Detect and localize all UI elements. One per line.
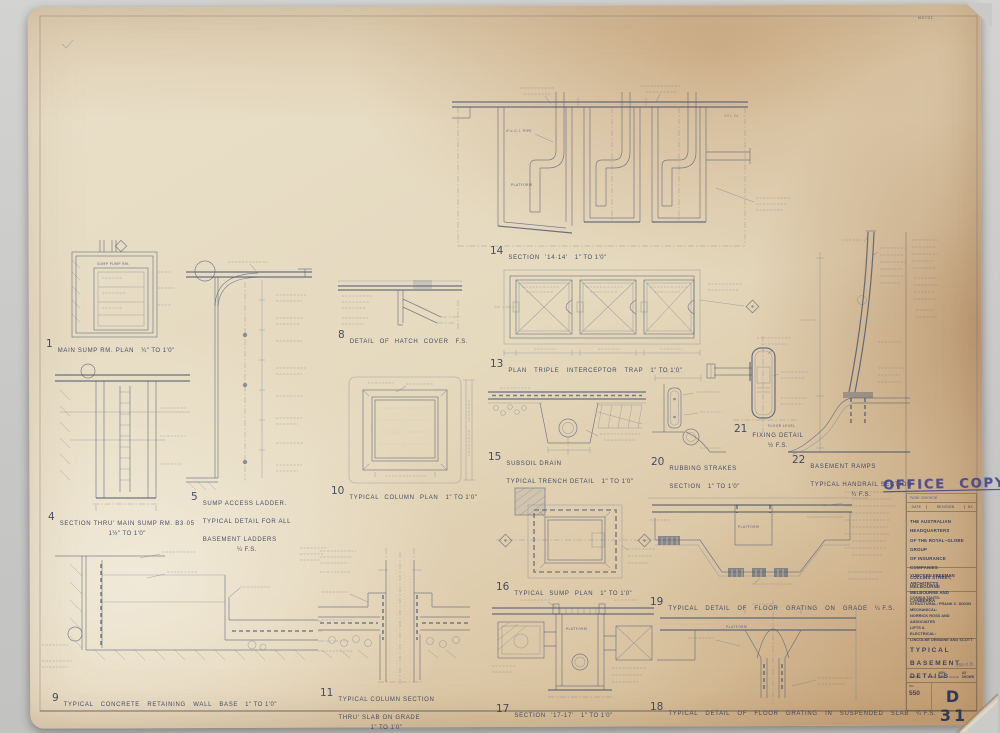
detail-label: TYPICAL SUMP PLAN	[514, 591, 593, 597]
revision-entry-row: Note General	[906, 493, 977, 503]
detail-16-drawing	[496, 488, 656, 578]
svg-text:4"⌀ C.I. PIPE: 4"⌀ C.I. PIPE	[506, 129, 532, 133]
detail-8-drawing	[338, 280, 462, 330]
detail-scale: ¼" TO 1'0"	[141, 348, 175, 354]
detail-19-drawing: PLATFORM	[648, 492, 895, 584]
detail-18-drawing: PLATFORM	[657, 600, 856, 704]
detail-15-drawing	[488, 388, 646, 455]
detail-17-drawing: PLATFORM	[492, 600, 654, 697]
detail-scale: 1½" TO 1'0"	[60, 531, 195, 537]
detail-label: SECTION '17-17'	[514, 713, 573, 719]
revision-by-header: BY	[965, 505, 976, 509]
svg-text:PLATFORM: PLATFORM	[726, 625, 747, 629]
detail-scale: 1" TO 1'0"	[445, 495, 477, 501]
detail-caption-13: 13 PLAN TRIPLE INTERCEPTOR TRAP1" TO 1'0…	[490, 359, 730, 377]
svg-text:PLATFORM: PLATFORM	[738, 525, 759, 529]
detail-number: 18	[650, 702, 663, 713]
detail-scale: 1" TO 1'0"	[245, 702, 277, 708]
architects-block: YUNCKEN FREEMAN ARCHITECTS MELBOURNE AND…	[906, 568, 977, 592]
svg-text:PLATFORM: PLATFORM	[511, 183, 532, 187]
project-line: THE AUSTRALIAN HEADQUARTERS	[910, 517, 973, 536]
detail-label: MAIN SUMP RM. PLAN	[58, 348, 135, 354]
detail-caption-19: 19 TYPICAL DETAIL OF FLOOR GRATING ON GR…	[650, 597, 920, 615]
detail-number: 1	[46, 339, 53, 350]
detail-number: 17	[496, 704, 509, 715]
svg-text:SUMP PUMP RM.: SUMP PUMP RM.	[97, 262, 130, 266]
detail-number: 8	[338, 330, 345, 341]
detail-5-drawing	[186, 261, 312, 490]
margin-notes	[912, 240, 938, 317]
svg-text:PLATFORM: PLATFORM	[566, 627, 587, 631]
detail-label: DETAIL OF HATCH COVER	[350, 339, 449, 345]
architects-line: YUNCKEN FREEMAN ARCHITECTS	[910, 572, 973, 589]
detail-label: FIXING DETAIL	[752, 433, 803, 439]
detail-number: 9	[52, 693, 59, 704]
detail-number: 19	[650, 597, 663, 608]
drawn-label: DRAWN	[909, 675, 920, 679]
job-number: 550	[909, 690, 929, 697]
detail-13-drawing	[494, 270, 759, 356]
scanned-drawing-photo: N0701 SUMP PUMP RM.	[0, 0, 1000, 733]
detail-9-drawing	[42, 548, 354, 667]
paper-tear	[928, 678, 998, 733]
detail-scale: 1" TO 1'0"	[650, 368, 682, 374]
check-mark	[62, 40, 73, 48]
detail-label: TYPICAL COLUMN SECTION THRU' SLAB ON GRA…	[338, 697, 434, 721]
detail-scale: ¼ F.S.	[875, 606, 895, 612]
revision-entry: Note General	[910, 495, 937, 500]
detail-22-drawing	[788, 231, 910, 454]
detail-scale: ¼ F.S.	[203, 547, 292, 553]
detail-number: 11	[320, 688, 333, 699]
detail-scale: 1" TO 1'0"	[575, 255, 607, 261]
drawn-signature	[923, 671, 924, 679]
detail-caption-20: 20 RUBBING STRAKES SECTION1" TO 1'0"	[651, 457, 751, 493]
detail-caption-15: 15 SUBSOIL DRAIN TYPICAL TRENCH DETAIL1"…	[488, 452, 648, 488]
detail-number: 15	[488, 452, 501, 463]
detail-caption-8: 8 DETAIL OF HATCH COVERF.S.	[338, 330, 488, 348]
svg-text:VOL 34: VOL 34	[724, 114, 739, 118]
detail-20-drawing	[652, 372, 726, 452]
detail-label: SUMP ACCESS LADDER. TYPICAL DETAIL FOR A…	[203, 501, 292, 543]
detail-label: PLAN TRIPLE INTERCEPTOR TRAP	[508, 368, 643, 374]
detail-number: 5	[191, 492, 198, 503]
detail-label: SECTION THRU' MAIN SUMP RM. B3·05	[60, 521, 195, 527]
detail-caption-10: 10 TYPICAL COLUMN PLAN1" TO 1'0"	[331, 486, 491, 504]
detail-number: 10	[331, 486, 344, 497]
detail-number: 13	[490, 359, 503, 370]
detail-1-drawing: SUMP PUMP RM.	[72, 240, 174, 337]
project-line: OF THE ROYAL–GLOBE GROUP	[910, 536, 973, 555]
detail-label: TYPICAL DETAIL OF FLOOR GRATING ON GRADE	[668, 606, 867, 612]
detail-caption-9: 9 TYPICAL CONCRETE RETAINING WALL BASE1"…	[52, 693, 342, 711]
detail-scale: 1" TO 1'0"	[338, 725, 434, 731]
revision-date-header: DATE	[907, 505, 926, 509]
detail-21-drawing: FLOOR LEVEL	[707, 336, 809, 432]
detail-caption-11: 11 TYPICAL COLUMN SECTION THRU' SLAB ON …	[320, 688, 455, 731]
detail-label: TYPICAL DETAIL OF FLOOR GRATING IN SUSPE…	[668, 711, 909, 717]
detail-scale: ½ F.S.	[752, 443, 803, 449]
detail-scale: 1" TO 1'0"	[600, 591, 632, 597]
detail-number: 14	[490, 246, 503, 257]
consultants-line: NORRICK ROSS AND ASSOCIATES	[910, 613, 973, 625]
detail-label: SECTION '14·14'	[508, 255, 567, 261]
detail-4-drawing	[55, 364, 190, 511]
detail-number: 22	[792, 455, 805, 466]
detail-scale: 1" TO 1'0"	[708, 484, 740, 490]
detail-label: SUBSOIL DRAIN TYPICAL TRENCH DETAIL	[506, 461, 594, 485]
detail-caption-16: 16 TYPICAL SUMP PLAN1" TO 1'0"	[496, 582, 666, 600]
detail-scale: 1" TO 1'0"	[581, 713, 613, 719]
consultants-block: CONSULTANTS: STRUCTURAL: FRANK C. DIXON …	[906, 592, 977, 639]
detail-number: 16	[496, 582, 509, 593]
detail-11-drawing	[318, 548, 470, 684]
detail-number: 21	[734, 424, 747, 435]
detail-number: 20	[651, 457, 664, 468]
detail-scale: F.S.	[456, 339, 468, 345]
no-label: NO.	[909, 684, 914, 688]
detail-label: TYPICAL COLUMN PLAN	[349, 495, 438, 501]
detail-caption-21: 21 FIXING DETAIL½ F.S.	[734, 424, 824, 449]
detail-10-drawing	[349, 377, 475, 483]
detail-number: 4	[48, 512, 55, 523]
detail-label: TYPICAL CONCRETE RETAINING WALL BASE	[64, 702, 238, 708]
office-copy-stamp: OFFICE COPY	[883, 476, 1000, 494]
detail-caption-1: 1 MAIN SUMP RM. PLAN¼" TO 1'0"	[46, 339, 206, 357]
revision-header: REVISION	[926, 505, 966, 509]
corner-mark: N0701	[918, 15, 934, 20]
detail-caption-17: 17 SECTION '17-17'1" TO 1'0"	[496, 704, 646, 722]
detail-caption-5: 5 SUMP ACCESS LADDER. TYPICAL DETAIL FOR…	[191, 492, 301, 553]
detail-14-drawing: 4"⌀ C.I. PIPE PLATFORM VOL 34	[452, 86, 790, 246]
detail-caption-14: 14 SECTION '14·14'1" TO 1'0"	[490, 246, 670, 264]
project-description: THE AUSTRALIAN HEADQUARTERS OF THE ROYAL…	[906, 512, 977, 568]
detail-scale: 1" TO 1'0"	[602, 479, 634, 485]
revision-header-row: DATE REVISION BY	[906, 503, 977, 512]
